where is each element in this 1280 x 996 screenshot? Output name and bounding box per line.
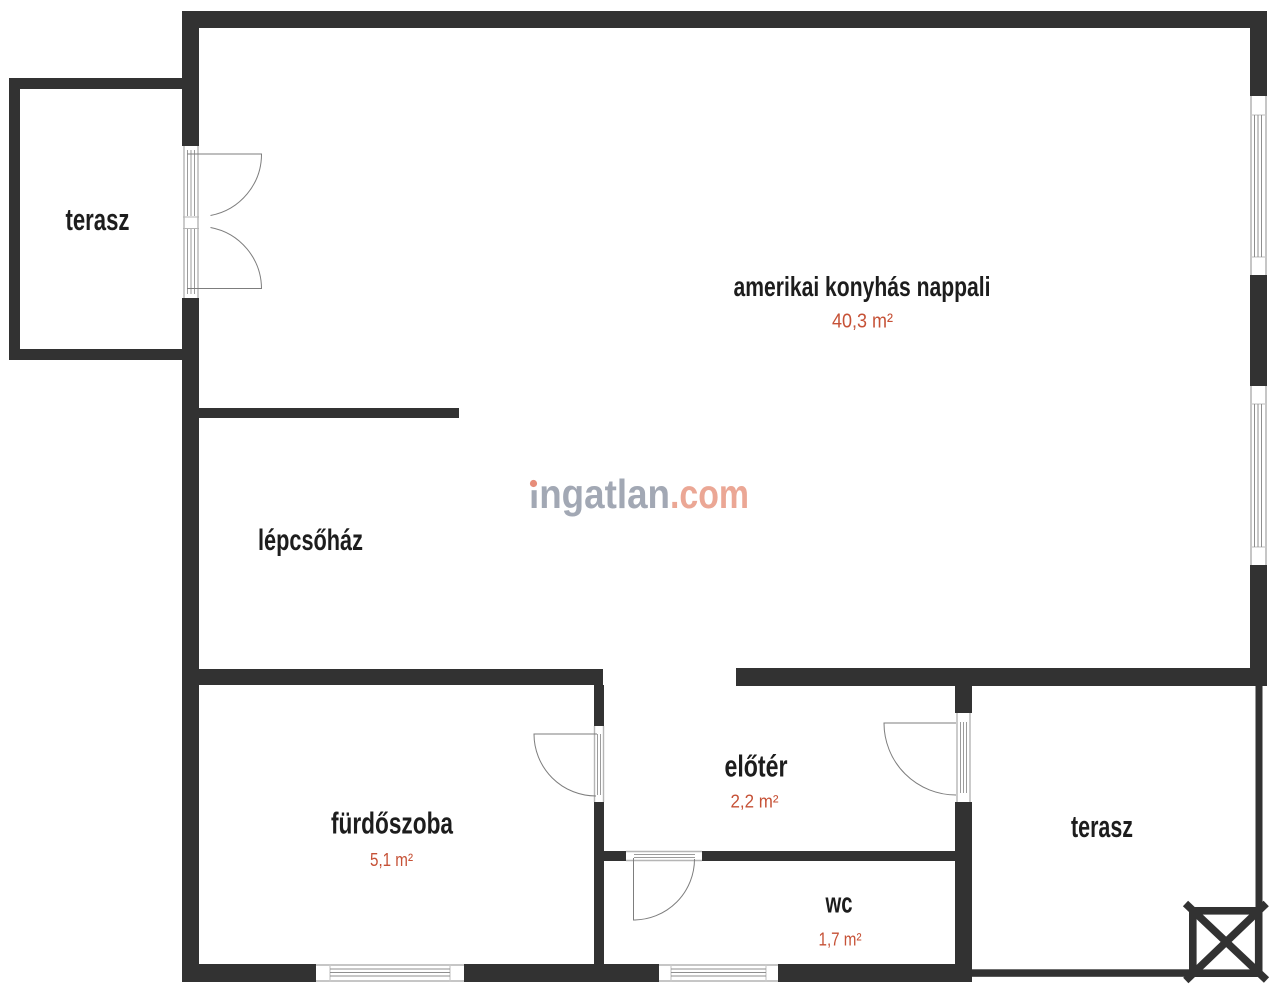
svg-text:terasz: terasz <box>1071 809 1133 844</box>
svg-text:wc: wc <box>825 888 853 920</box>
svg-text:fürdőszoba: fürdőszoba <box>331 806 454 841</box>
svg-text:ıngatlan: ıngatlan <box>529 471 670 517</box>
svg-text:5,1 m²: 5,1 m² <box>370 850 413 870</box>
svg-text:lépcsőház: lépcsőház <box>258 524 363 557</box>
svg-text:amerikai konyhás nappali: amerikai konyhás nappali <box>734 271 991 302</box>
svg-text:1,7 m²: 1,7 m² <box>819 930 862 950</box>
svg-text:előtér: előtér <box>725 749 788 784</box>
svg-text:40,3 m²: 40,3 m² <box>832 311 893 333</box>
svg-text:terasz: terasz <box>66 202 130 237</box>
svg-text:2,2 m²: 2,2 m² <box>731 792 779 812</box>
svg-text:.com: .com <box>670 471 749 517</box>
